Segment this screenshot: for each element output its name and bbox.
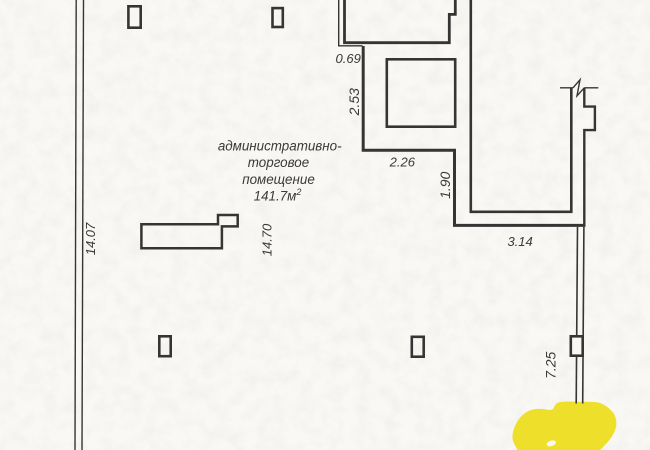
svg-text:14.70: 14.70 [259,223,274,256]
svg-text:помещение: помещение [242,172,315,187]
svg-text:торговое: торговое [248,155,309,170]
svg-text:14.07: 14.07 [83,222,98,255]
svg-text:7.25: 7.25 [543,351,559,378]
svg-text:1.90: 1.90 [437,171,453,198]
svg-text:2.53: 2.53 [346,88,362,116]
svg-text:административно-: административно- [218,138,342,153]
svg-text:0.69: 0.69 [336,51,361,66]
svg-text:141.7м2: 141.7м2 [254,187,302,204]
svg-text:2.26: 2.26 [389,154,416,169]
svg-text:3.14: 3.14 [507,234,532,249]
